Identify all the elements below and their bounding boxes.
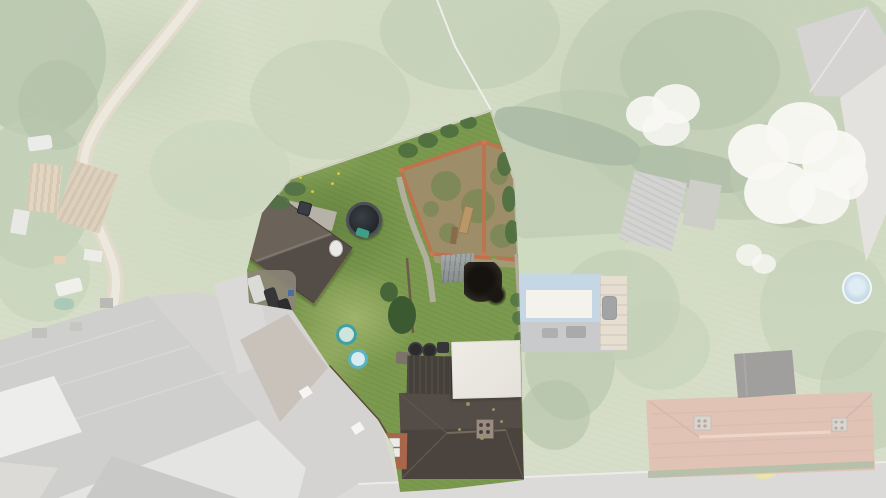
aerial-photo <box>0 0 886 498</box>
chimney-pot <box>486 423 490 427</box>
chimney-pot <box>703 419 707 423</box>
shed-small <box>83 249 102 262</box>
moss-dot <box>458 428 461 431</box>
moss-dot <box>492 408 495 411</box>
white-tank <box>329 240 343 257</box>
patio-item <box>566 326 586 338</box>
burn-patch <box>486 284 506 306</box>
house-chimney <box>476 419 494 439</box>
paddling-pool <box>348 349 368 369</box>
bin-store <box>437 342 449 353</box>
patio-item <box>542 328 558 338</box>
pallet-stack <box>26 162 63 213</box>
blossom-tree-small <box>626 82 702 140</box>
wall-pillar <box>399 168 404 173</box>
chimney-pot <box>697 419 701 423</box>
dandelion <box>337 172 340 175</box>
junk-item <box>288 290 294 296</box>
shrub <box>398 143 418 158</box>
chimney-pot <box>479 430 483 434</box>
chimney-pot <box>703 424 707 428</box>
clutter-item <box>54 256 66 264</box>
paddling-pool <box>336 324 357 345</box>
moss-dot <box>500 420 503 423</box>
chimney-pot <box>840 426 843 429</box>
chimney-pot <box>486 430 490 434</box>
blossom-tree <box>718 96 868 236</box>
clutter-item <box>100 298 113 308</box>
chimney-pot <box>834 420 837 423</box>
weed-patch <box>431 171 461 201</box>
shrub <box>284 182 306 196</box>
green-tent <box>54 298 74 310</box>
clutter-item <box>70 322 82 331</box>
bush-cluster <box>380 282 398 302</box>
chimney <box>694 416 711 430</box>
bush-cluster <box>388 296 416 334</box>
water-butt <box>602 296 617 320</box>
wall-pillar <box>482 252 487 257</box>
blossom-cluster <box>752 254 776 274</box>
dandelion <box>299 176 302 179</box>
fence-line <box>437 0 491 110</box>
shrub <box>502 186 516 212</box>
chimney <box>832 418 847 431</box>
clutter-item <box>32 328 47 338</box>
white-flat-roof <box>451 340 521 399</box>
chimney-pot <box>697 424 701 428</box>
tarp-cream-panel <box>526 290 592 318</box>
weed-patch <box>423 201 439 217</box>
blossom-cluster <box>642 110 690 146</box>
chimney-pot <box>834 426 837 429</box>
dandelion <box>331 182 334 185</box>
wall-pillar <box>482 140 487 145</box>
dandelion <box>311 190 314 193</box>
shrub <box>418 133 438 148</box>
chimney-pot <box>479 423 483 427</box>
blossom-cluster <box>828 156 868 200</box>
wall-pillar <box>430 252 435 257</box>
chimney-pot <box>840 420 843 423</box>
moss-dot <box>466 402 470 406</box>
moss-dot <box>480 436 484 440</box>
round-pool-neighbor <box>842 272 872 304</box>
dark-flat-roof <box>407 356 456 395</box>
